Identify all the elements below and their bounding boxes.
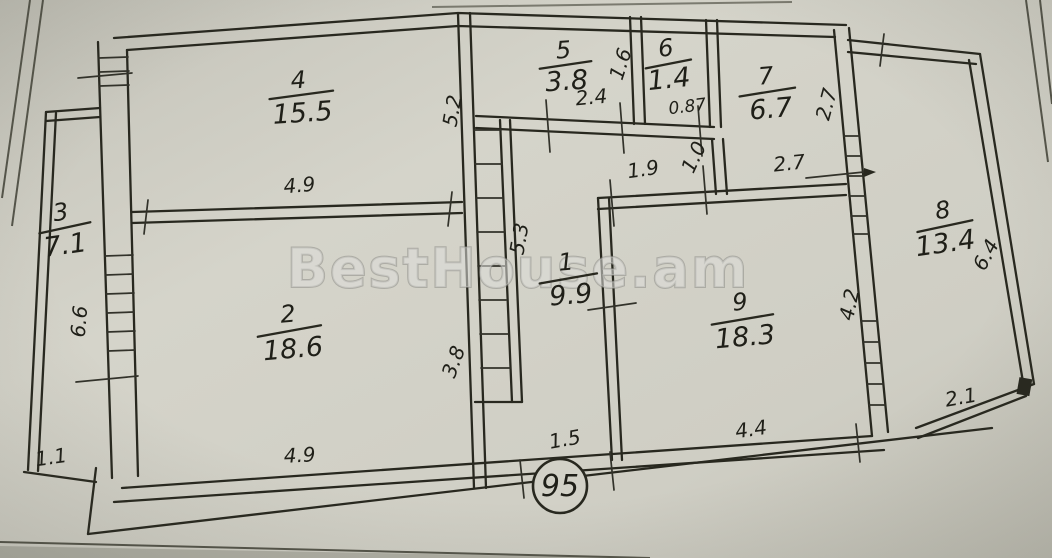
floor-plan-photo: BestHouse.am 4 15.5 5 3.8 6 1.4 7 6.7 8 … <box>0 0 1052 558</box>
dim-strip-left: 6.6 <box>66 304 93 338</box>
dim-room9-bottom: 4.4 <box>734 415 769 443</box>
plan-number-badge: 95 <box>533 459 587 513</box>
svg-text:4: 4 <box>290 66 307 95</box>
svg-text:1: 1 <box>557 247 575 276</box>
dim-room2-bottom: 4.9 <box>283 442 316 468</box>
svg-text:1.4: 1.4 <box>646 62 692 97</box>
dim-room4-bottom: 4.9 <box>282 172 316 199</box>
svg-text:9: 9 <box>731 287 749 316</box>
dim-hall-top-right: 2.7 <box>772 149 806 176</box>
svg-text:15.5: 15.5 <box>272 96 334 131</box>
plan-number-text: 95 <box>541 469 579 504</box>
svg-text:18.3: 18.3 <box>714 319 777 355</box>
svg-text:9.9: 9.9 <box>548 278 593 313</box>
svg-text:2: 2 <box>279 299 297 328</box>
svg-text:18.6: 18.6 <box>262 331 325 367</box>
svg-text:7.1: 7.1 <box>42 227 89 264</box>
dim-hall-top-left: 1.9 <box>626 155 661 183</box>
dim-room5-bottom: 2.4 <box>574 84 608 111</box>
svg-text:6.7: 6.7 <box>748 92 793 127</box>
svg-text:6: 6 <box>657 33 675 62</box>
svg-text:5: 5 <box>555 36 572 65</box>
dim-strip-bottom: 1.1 <box>34 443 69 471</box>
floor-plan: BestHouse.am 4 15.5 5 3.8 6 1.4 7 6.7 8 … <box>0 0 1052 558</box>
